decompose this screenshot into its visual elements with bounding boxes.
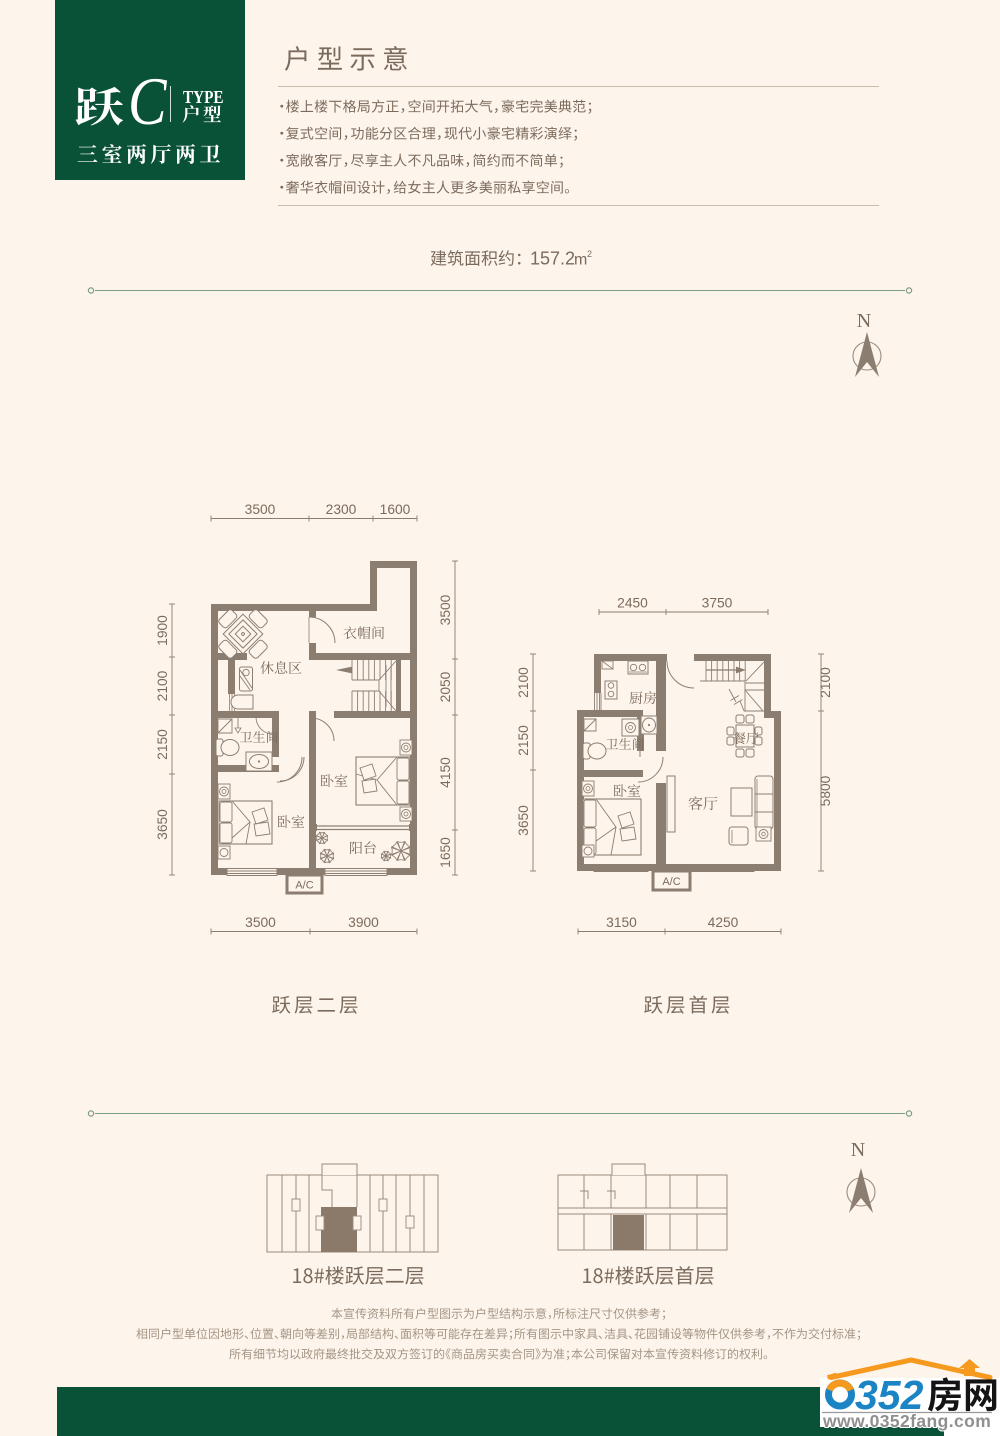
svg-text:157.2: 157.2 xyxy=(530,249,575,269)
svg-text:N: N xyxy=(851,1139,865,1161)
svg-text:3750: 3750 xyxy=(702,596,733,611)
svg-text:3500: 3500 xyxy=(438,594,453,625)
svg-text:C: C xyxy=(128,64,167,139)
svg-text:2050: 2050 xyxy=(438,671,453,702)
svg-text:1650: 1650 xyxy=(438,837,453,868)
svg-text:2450: 2450 xyxy=(617,596,648,611)
svg-text:3500: 3500 xyxy=(245,915,276,930)
svg-text:TYPE: TYPE xyxy=(183,87,224,107)
svg-text:1600: 1600 xyxy=(380,502,411,517)
svg-text:A/C: A/C xyxy=(295,880,313,892)
svg-text:3500: 3500 xyxy=(245,502,276,517)
svg-text:2: 2 xyxy=(587,249,592,259)
svg-text:2100: 2100 xyxy=(516,667,531,698)
svg-text:www.0352fang.com: www.0352fang.com xyxy=(822,1411,991,1431)
svg-text:3650: 3650 xyxy=(155,809,170,840)
svg-text:2150: 2150 xyxy=(516,725,531,756)
svg-text:3900: 3900 xyxy=(348,915,379,930)
svg-text:3650: 3650 xyxy=(516,805,531,836)
svg-text:2150: 2150 xyxy=(155,729,170,760)
svg-text:m: m xyxy=(574,252,587,269)
svg-text:3150: 3150 xyxy=(606,915,637,930)
svg-text:N: N xyxy=(857,310,871,332)
svg-text:5800: 5800 xyxy=(818,775,833,806)
svg-text:4250: 4250 xyxy=(708,915,739,930)
svg-text:2100: 2100 xyxy=(155,670,170,701)
svg-text:2300: 2300 xyxy=(326,502,357,517)
svg-text:1900: 1900 xyxy=(155,615,170,646)
svg-text:4150: 4150 xyxy=(438,757,453,788)
svg-text:2100: 2100 xyxy=(818,667,833,698)
svg-text:A/C: A/C xyxy=(662,876,680,888)
